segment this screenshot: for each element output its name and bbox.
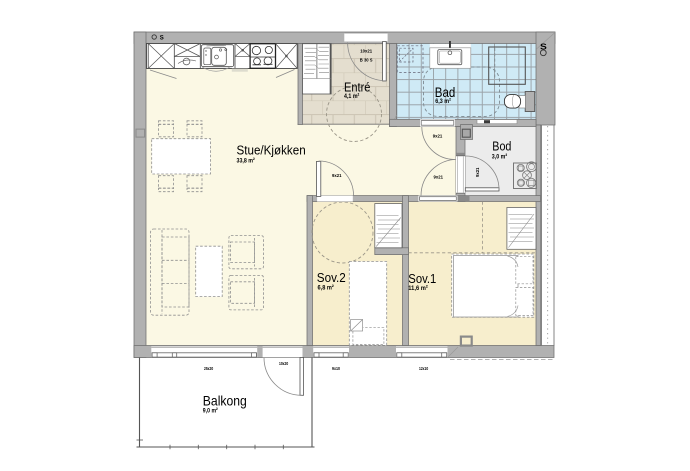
svg-text:4,1 m²: 4,1 m² (344, 93, 360, 100)
svg-text:10x20: 10x20 (279, 361, 289, 366)
svg-text:9x21: 9x21 (433, 134, 443, 139)
svg-text:33,8 m²: 33,8 m² (237, 157, 256, 164)
svg-text:12x10: 12x10 (419, 366, 429, 371)
svg-text:9,0 m²: 9,0 m² (203, 407, 219, 414)
svg-text:3,0 m²: 3,0 m² (492, 153, 508, 160)
svg-text:9x21: 9x21 (434, 175, 444, 180)
svg-text:9x10: 9x10 (332, 366, 340, 371)
svg-text:9x21: 9x21 (332, 173, 342, 178)
svg-text:S: S (160, 36, 164, 42)
svg-text:B 30 S: B 30 S (360, 58, 373, 63)
svg-text:6,8 m²: 6,8 m² (318, 284, 335, 291)
svg-text:6,3 m²: 6,3 m² (435, 98, 451, 105)
svg-text:25x20: 25x20 (204, 366, 214, 371)
svg-text:Balkong: Balkong (203, 393, 247, 408)
svg-text:Bod: Bod (492, 138, 511, 153)
svg-text:Sov.1: Sov.1 (408, 271, 436, 286)
svg-text:Stue/Kjøkken: Stue/Kjøkken (237, 143, 306, 158)
svg-text:10x21: 10x21 (360, 49, 372, 54)
svg-text:9x21: 9x21 (475, 167, 480, 177)
svg-text:Sov.2: Sov.2 (317, 270, 346, 285)
svg-text:11,6 m²: 11,6 m² (408, 285, 428, 292)
